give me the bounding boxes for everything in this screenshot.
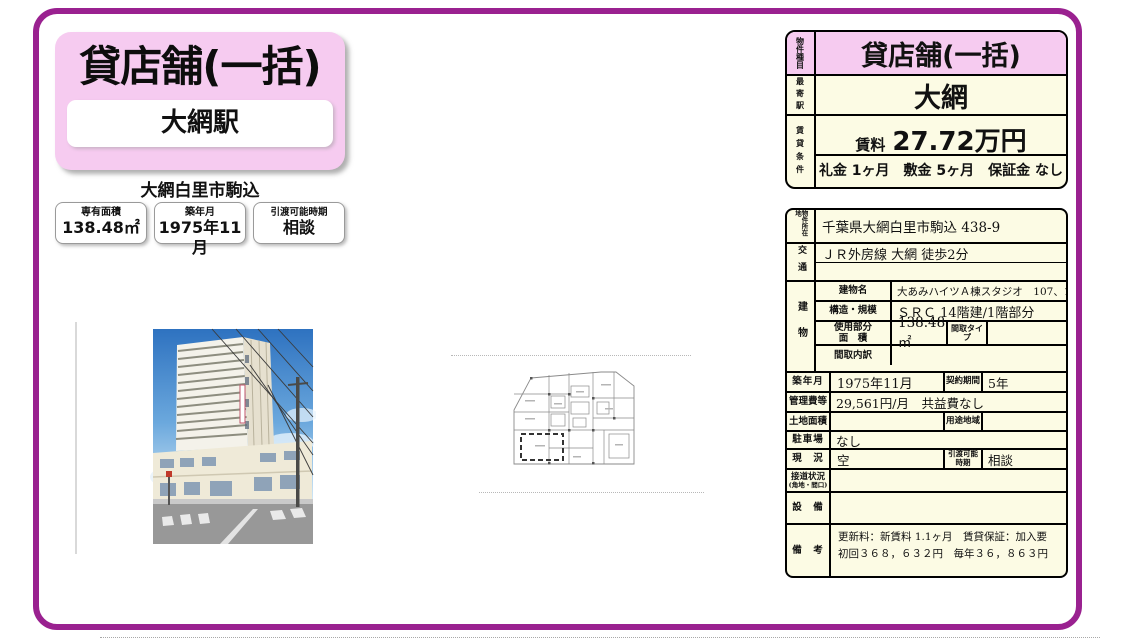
summary-type-value: 貸店舗(一括) [816,32,1066,74]
parking-label: 駐車場 [787,432,831,448]
rent-value: 27.72万円 [892,121,1026,158]
summary-station-label: 最寄駅 [797,77,805,113]
management-value: 29,561円/月 共益費なし [831,393,1066,411]
row-location: 物件所在地 千葉県大網白里市駒込 438-9 [787,210,1066,244]
summary-station-value: 大網 [816,76,1066,114]
building-photo [150,325,316,547]
row-notes: 備 考 更新料：新賃料 1.1ヶ月 賃貸保証：加入要 初回３６８，６３２円 毎年… [787,525,1066,576]
chip-handover: 引渡可能時期 相談 [253,202,345,244]
building-name-label: 建物名 [816,282,892,300]
management-label: 管理費等 [787,393,831,411]
structure-label: 構造・規模 [816,302,892,320]
area-label-bottom: 面 積 [839,333,868,344]
built-value: 1975年11月 [831,373,945,391]
summary-terms-label: 賃貸条件 [797,126,805,178]
summary-type-label-cell: 物件種目 [787,32,816,74]
scan-bottom-artifact [100,637,1100,638]
layout-breakdown-label: 間取内訳 [816,346,892,365]
row-status: 現 況 空 引渡可能時期 相談 [787,450,1066,470]
deposit-terms: 礼金 1ヶ月 敷金 5ヶ月 保証金 なし [816,156,1066,183]
chip-area-label: 専有面積 [56,207,146,218]
building-label: 建物 [796,301,806,353]
chip-built-label: 築年月 [155,207,245,218]
flyer-purple-frame: 貸店舗(一括) 大網駅 大網白里市駒込 専有面積 138.48㎡ 築年月 197… [33,8,1082,630]
road-value [831,470,1066,491]
road-label-sub: (角地・間口) [789,482,828,490]
rent-label: 賃料 [855,134,885,155]
layout-type-label: 間取タイプ [946,322,988,344]
summary-station-label-cell: 最寄駅 [787,76,816,114]
summary-row-station: 最寄駅 大網 [787,76,1066,116]
summary-terms-label-cell: 賃貸条件 [787,116,816,187]
row-area: 使用部分 面 積 138.48㎡ 間取タイプ [816,322,1068,346]
chip-handover-label: 引渡可能時期 [254,207,344,218]
row-built: 築年月 1975年11月 契約期間 5年 [787,373,1066,393]
summary-type-label: 物件種目 [797,37,805,69]
row-land: 土地面積 用途地域 [787,413,1066,432]
location-text: 大網白里市駒込 [55,176,345,201]
summary-row-terms: 賃貸条件 賃料 27.72万円 礼金 1ヶ月 敷金 5ヶ月 保証金 なし [787,116,1066,187]
scan-edge-line [75,322,77,554]
row-management: 管理費等 29,561円/月 共益費なし [787,393,1066,413]
land-value [831,413,945,430]
scan-artifact-line [451,355,691,356]
building-name-value: 大あみハイツＡ棟スタジオ 107、110 [892,282,1068,300]
row-access: 交通 ＪＲ外房線 大網 徒歩2分 [787,244,1066,282]
row-road: 接道状況 (角地・間口) [787,470,1066,493]
status-value: 空 [831,450,945,468]
chip-area-value: 138.48㎡ [56,218,146,238]
access-value-2 [816,263,1066,280]
status-label: 現 況 [787,450,831,468]
summary-row-type: 物件種目 貸店舗(一括) [787,32,1066,76]
row-equipment: 設 備 [787,493,1066,525]
property-title-card: 貸店舗(一括) 大網駅 [55,32,345,170]
built-label: 築年月 [787,373,831,391]
land-label: 土地面積 [787,413,831,430]
equipment-value [831,493,1066,523]
summary-table: 物件種目 貸店舗(一括) 最寄駅 大網 賃貸条件 賃料 27.72万円 礼金 1… [785,30,1068,189]
row-parking: 駐車場 なし [787,432,1066,450]
contract-label: 契約期間 [943,373,983,391]
row-layout-breakdown: 間取内訳 [816,346,1068,365]
rent-line: 賃料 27.72万円 [816,116,1066,156]
notes-value: 更新料：新賃料 1.1ヶ月 賃貸保証：加入要 初回３６８，６３２円 毎年３６，８… [831,525,1066,576]
contract-value: 5年 [983,373,1066,391]
summary-chips: 専有面積 138.48㎡ 築年月 1975年11月 引渡可能時期 相談 [55,202,345,244]
zoning-label: 用途地域 [943,413,983,430]
parking-value: なし [831,432,1066,448]
access-label: 交通 [796,245,805,279]
area-label-top: 使用部分 [834,322,872,333]
chip-handover-value: 相談 [254,218,344,238]
handover-label: 引渡可能時期 [943,450,983,468]
handover-value: 相談 [983,450,1066,468]
zoning-value [983,413,1066,430]
layout-type-value [988,322,1068,344]
detail-table: 物件所在地 千葉県大網白里市駒込 438-9 交通 ＪＲ外房線 大網 徒歩2分 … [785,208,1068,578]
scan-artifact-line [479,492,704,493]
chip-built: 築年月 1975年11月 [154,202,246,244]
notes-label: 備 考 [787,525,831,576]
row-building-name: 建物名 大あみハイツＡ棟スタジオ 107、110 [816,282,1068,302]
chip-area: 専有面積 138.48㎡ [55,202,147,244]
access-value: ＪＲ外房線 大網 徒歩2分 [816,244,1066,263]
location-label: 物件所在地 [794,210,807,242]
location-value: 千葉県大網白里市駒込 438-9 [816,210,1066,242]
row-building-group: 建物 建物名 大あみハイツＡ棟スタジオ 107、110 構造・規模 ＳＲＣ 14… [787,282,1066,373]
chip-built-value: 1975年11月 [155,218,245,258]
floor-plan-image [501,366,651,484]
station-name-box: 大網駅 [67,100,333,147]
property-type-title: 貸店舗(一括) [55,32,345,100]
area-value: 138.48㎡ [892,322,948,344]
equipment-label: 設 備 [787,493,831,523]
layout-breakdown-value [892,346,1068,365]
